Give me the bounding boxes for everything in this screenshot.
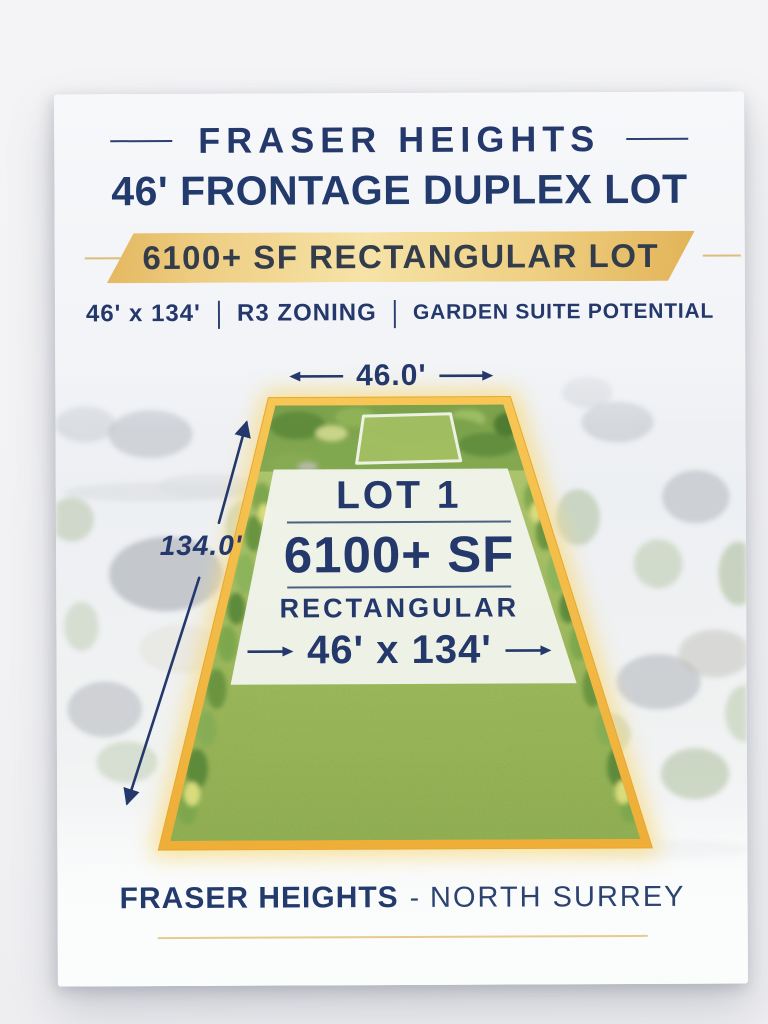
lot-dimensions-label: 46' x 134' (307, 628, 492, 674)
specs-row: 46' x 134' | R3 ZONING | GARDEN SUITE PO… (55, 297, 745, 328)
panel-divider (287, 586, 511, 589)
flyer-sheet: FRASER HEIGHTS 46' FRONTAGE DUPLEX LOT 6… (54, 91, 748, 986)
lot-size-label: 6100+ SF (223, 526, 575, 584)
arrow-left-icon (287, 369, 343, 383)
neighbourhood-title: FRASER HEIGHTS (198, 118, 600, 162)
footer-location: FRASER HEIGHTS - NORTH SURREY (57, 879, 747, 916)
headline-row: FRASER HEIGHTS (54, 117, 744, 162)
banner-right-rule (703, 255, 741, 257)
spec-feature: GARDEN SUITE POTENTIAL (413, 300, 714, 325)
spec-separator: | (216, 296, 222, 331)
footer-gold-rule (158, 935, 648, 939)
arrow-right-icon (504, 643, 554, 657)
arrow-right-icon (245, 644, 295, 658)
frontage-dimension: 46.0' (55, 358, 727, 395)
gold-banner: 6100+ SF RECTANGULAR LOT (107, 231, 695, 284)
flyer-content: FRASER HEIGHTS 46' FRONTAGE DUPLEX LOT 6… (54, 91, 748, 986)
spec-dimensions: 46' x 134' (86, 300, 201, 329)
banner-text: 6100+ SF RECTANGULAR LOT (142, 237, 659, 277)
spec-separator: | (392, 296, 398, 331)
footer-area: FRASER HEIGHTS (120, 881, 399, 916)
title-left-rule (110, 140, 172, 142)
arrow-right-icon (440, 369, 496, 383)
panel-divider (287, 521, 511, 524)
page-background: FRASER HEIGHTS 46' FRONTAGE DUPLEX LOT 6… (0, 0, 768, 1024)
spec-zoning: R3 ZONING (237, 299, 377, 328)
frontage-label: 46.0' (356, 359, 427, 393)
lot-shape-label: RECTANGULAR (223, 591, 575, 625)
lot-number-label: LOT 1 (223, 473, 575, 519)
main-headline: 46' FRONTAGE DUPLEX LOT (54, 165, 744, 215)
lot-dimensions-row: 46' x 134' (223, 627, 575, 674)
gold-banner-row: 6100+ SF RECTANGULAR LOT (55, 230, 745, 283)
footer-city: NORTH SURREY (430, 881, 686, 915)
footer-separator: - (410, 882, 419, 914)
lot-info-text: LOT 1 6100+ SF RECTANGULAR 46' x 134' (223, 473, 576, 674)
title-right-rule (626, 138, 688, 140)
